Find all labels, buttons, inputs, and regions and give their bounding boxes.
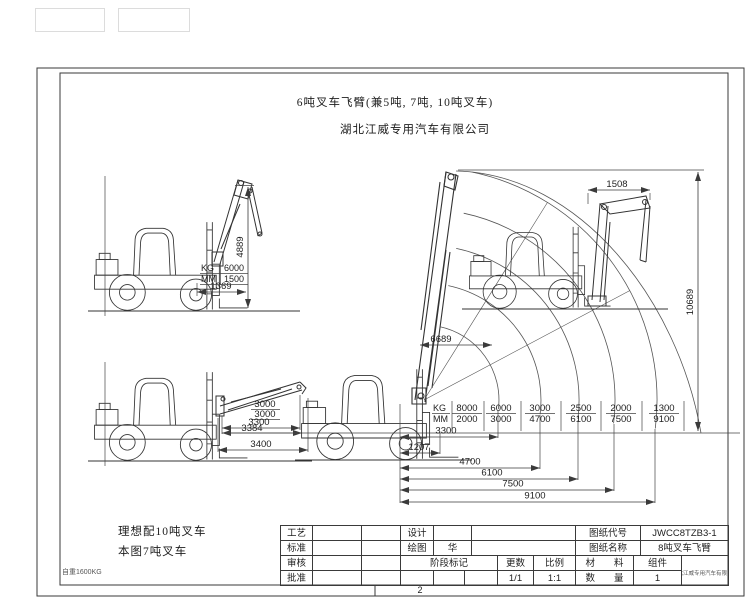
kg-value: 6000	[224, 263, 244, 273]
chart-kg-2: 3000	[529, 403, 550, 414]
tb-quantity-value: 1	[633, 570, 681, 585]
tb-empty-cell	[312, 570, 361, 585]
chart-kg-3: 2500	[570, 403, 591, 414]
chart-kg-1: 6000	[490, 403, 511, 414]
dim-4889: 4889	[235, 236, 246, 257]
page-number: 2	[405, 585, 435, 595]
chart-mm-5: 9100	[653, 414, 674, 425]
forklift-horizontal-view: 3000 3000 3300 3384 3400	[88, 362, 312, 466]
tb-name-value: 8吨叉车飞臂	[640, 540, 728, 555]
tb-empty-cell	[471, 525, 575, 540]
dim-main-3300: 3300	[435, 426, 456, 437]
chart-kg-0: 8000	[456, 403, 477, 414]
tb-draw-label: 绘图	[400, 540, 433, 555]
tb-review-label: 审核	[280, 555, 312, 570]
tb-sheets-label: 更数	[497, 555, 533, 570]
tb-empty-cell	[433, 525, 471, 540]
chart-mm-1: 3000	[490, 414, 511, 425]
tb-empty-cell	[433, 570, 464, 585]
chart-mm-0: 2000	[456, 414, 477, 425]
chart-kg-label: KG	[433, 403, 446, 413]
tb-scale-value: 1:1	[533, 570, 575, 585]
dim-4700: 4700	[459, 457, 480, 468]
dim-10689: 10689	[685, 289, 696, 315]
kg-label: KG	[201, 263, 214, 273]
forklift-folded-view: 1508	[462, 179, 668, 309]
chart-kg-4: 2000	[610, 403, 631, 414]
dim-1207: 1207	[408, 442, 429, 453]
horizontal-view-dimensions: 3000 3000 3300 3384 3400	[218, 395, 308, 452]
forklift-elevated-view: 4889 1369 KG 6000 MM 1500	[88, 176, 300, 316]
drawing-sheet: 6吨叉车飞臂(兼5吨, 7吨, 10吨叉车) 湖北江威专用汽车有限公司 理想配1…	[0, 0, 750, 600]
tb-empty-cell	[312, 555, 361, 570]
tb-quantity-label: 数 量	[575, 570, 633, 585]
dim-3384: 3384	[241, 423, 262, 434]
tb-craft-label: 工艺	[280, 525, 312, 540]
tb-sheets-value: 1/1	[497, 570, 533, 585]
capacity-mini-table: KG 6000 MM 1500	[200, 263, 248, 285]
dim-7500: 7500	[502, 479, 523, 490]
chart-mm-label: MM	[433, 414, 448, 424]
tb-standard-label: 标准	[280, 540, 312, 555]
tb-stage-mark-label: 阶段标记	[400, 555, 497, 570]
drawing-canvas: 4889 1369 KG 6000 MM 1500	[0, 0, 750, 600]
tb-empty-cell	[361, 570, 400, 585]
chart-mm-4: 7500	[610, 414, 631, 425]
dim-9100: 9100	[524, 491, 545, 502]
boom-folded	[588, 196, 650, 306]
tb-empty-cell	[361, 525, 400, 540]
dim-6100: 6100	[481, 468, 502, 479]
tb-empty-cell	[361, 555, 400, 570]
tb-design-label: 设计	[400, 525, 433, 540]
tb-approve-label: 批准	[280, 570, 312, 585]
sheet-frame	[37, 68, 744, 596]
tb-code-label: 图纸代号	[575, 525, 640, 540]
tb-name-label: 图纸名称	[575, 540, 640, 555]
tb-empty-cell	[400, 570, 433, 585]
tb-empty-cell	[471, 540, 575, 555]
load-chart: KG MM 8000 6000 3000 2500 2000 1300 2000…	[432, 401, 684, 431]
tb-component-label: 组件	[633, 555, 681, 570]
mm-value: 1500	[224, 274, 244, 284]
dim-6689: 6689	[430, 334, 451, 345]
tb-empty-cell	[464, 570, 497, 585]
mm-label: MM	[201, 274, 216, 284]
boom-raised	[412, 172, 458, 404]
tb-empty-cell	[312, 525, 361, 540]
tb-empty-cell	[312, 540, 361, 555]
chart-mm-3: 6100	[570, 414, 591, 425]
tb-corner-note: 湖北江威专用汽车有限公司	[681, 555, 728, 585]
chart-kg-5: 1300	[653, 403, 674, 414]
tb-empty-cell	[361, 540, 400, 555]
main-view-dimensions: 6689 3300 1207 4700 6100 7500 9100 10689	[400, 170, 704, 503]
tb-scale-label: 比例	[533, 555, 575, 570]
tb-draw-value: 华	[433, 540, 471, 555]
working-range-arcs	[424, 171, 701, 433]
dim-1508: 1508	[606, 179, 627, 190]
dim-3400: 3400	[250, 439, 271, 450]
tb-material-label: 材 料	[575, 555, 633, 570]
title-block: 工艺 设计 图纸代号 JWCC8TZB3-1 标准 绘图 华 图纸名称 8吨叉车…	[280, 525, 729, 586]
tb-code-value: JWCC8TZB3-1	[640, 525, 728, 540]
